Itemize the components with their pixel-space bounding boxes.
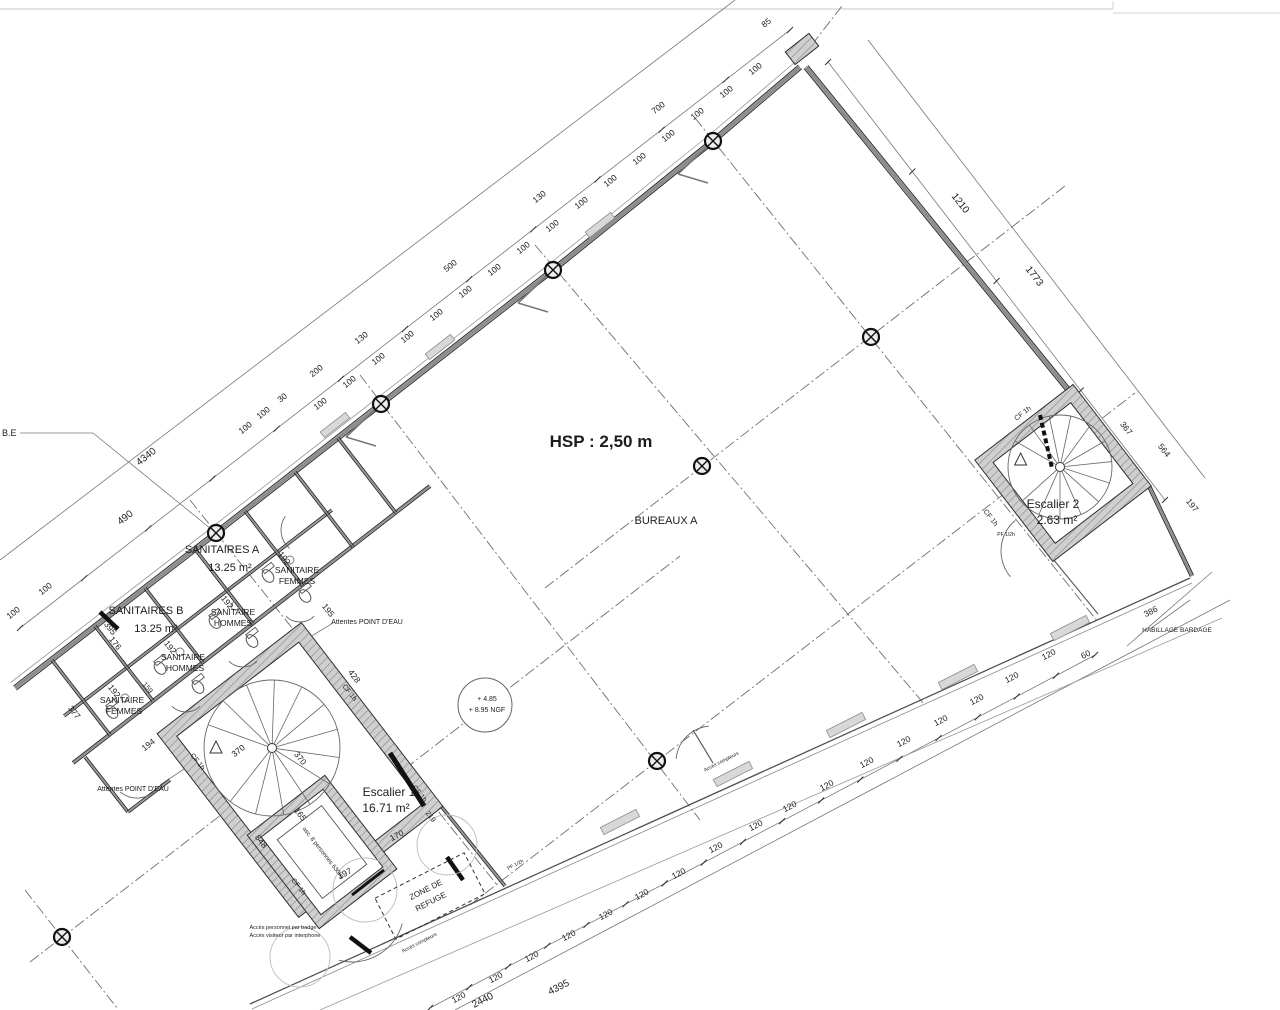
room-escalier-1: Escalier 1: [363, 785, 416, 799]
column-grid-marker: [373, 396, 389, 412]
dimension-label: 1210: [949, 191, 972, 216]
dimension-label: 120: [858, 755, 875, 770]
dimension-label: 428: [346, 667, 363, 685]
dimension-label: 120: [781, 799, 798, 814]
room-sanitaire-femmes-a1: SANITAIRE: [275, 565, 320, 575]
room-escalier-2-area: 2.63 m²: [1037, 513, 1078, 527]
column-grid-marker: [545, 262, 561, 278]
stair-elevator-cores: [100, 384, 1151, 953]
dimension-label: 120: [968, 692, 985, 707]
dimension-label: 100: [630, 150, 648, 167]
room-sanitaire-hommes-a2: HOMMES: [214, 618, 253, 628]
page-edge-lines: [0, 1, 1280, 13]
room-sanitaire-femmes-b2: FEMMES: [106, 706, 143, 716]
dimension-label: 100: [4, 604, 22, 621]
dimension-label: 564: [1156, 441, 1173, 459]
fragment-ble: B.E: [2, 428, 17, 438]
dimension-label: 194: [139, 736, 157, 753]
dimension-label: 120: [895, 734, 912, 749]
dimension-label: 120: [560, 928, 577, 943]
dimension-label: 120: [597, 907, 614, 922]
hsp-height-label: HSP : 2,50 m: [550, 432, 653, 451]
dimension-label: 85: [759, 16, 773, 30]
dimension-label: 4340: [134, 446, 159, 469]
dimension-label: 60: [1079, 648, 1092, 661]
dimension-label: 100: [254, 404, 272, 421]
dimension-label: 120: [747, 818, 764, 833]
dimension-label: 4395: [546, 978, 571, 998]
dimension-label: 377: [66, 703, 83, 721]
floor-plan-page: B.EHSP : 2,50 mBUREAUX ASANITAIRES A13.2…: [0, 0, 1280, 1010]
dimension-label: 100: [369, 350, 387, 367]
acces-badge-2: Accès visiteur par interphone: [250, 933, 321, 939]
acces-badge-1: Accès personnel par badge: [250, 925, 317, 931]
dimension-label: 1773: [1023, 264, 1046, 289]
dimension-label: 700: [649, 99, 667, 116]
dimension-label: 200: [307, 362, 325, 379]
room-sanitaire-femmes-a2: FEMMES: [279, 576, 316, 586]
dimension-label: 120: [1003, 670, 1020, 685]
room-sanitaire-hommes-b1: SANITAIRE: [161, 652, 206, 662]
dimension-label: 100: [746, 60, 764, 77]
floor-plan-canvas: B.EHSP : 2,50 mBUREAUX ASANITAIRES A13.2…: [0, 0, 1280, 1010]
dimension-label: 100: [36, 580, 54, 597]
dimension-label: 100: [427, 306, 445, 323]
column-grid-marker: [694, 458, 710, 474]
habillage-bardage: HABILLAGE BARDAGE: [1142, 627, 1212, 634]
dimension-label: 197: [1184, 496, 1201, 514]
dimension-label: 500: [441, 257, 459, 274]
dimension-label: 100: [456, 283, 474, 300]
fire-wall-5: CF 1h: [982, 508, 999, 527]
room-sanitaires-b-area: 13.25 m²: [134, 623, 178, 635]
structural-grid: [25, 6, 1135, 1008]
room-sanitaires-a: SANITAIRES A: [185, 544, 260, 556]
acces-compteurs-2: Accès compteurs: [401, 932, 438, 955]
room-sanitaires-b: SANITAIRES B: [109, 605, 184, 617]
fire-door-2: PF 1/2h: [997, 532, 1015, 538]
dimension-label: 100: [236, 419, 254, 436]
column-grid-marker: [208, 525, 224, 541]
dimension-label: 130: [352, 329, 370, 346]
dimension-label: 100: [688, 105, 706, 122]
column-grid-marker: [863, 329, 879, 345]
room-sanitaire-hommes-b2: HOMMES: [166, 663, 205, 673]
dimension-label: 30: [275, 391, 289, 405]
room-escalier-2: Escalier 2: [1027, 497, 1080, 511]
attentes-point-eau-2: Attentes POINT D'EAU: [97, 786, 169, 793]
room-escalier-1-area: 16.71 m²: [362, 801, 409, 815]
dimension-label: 120: [633, 887, 650, 902]
dimension-label: 386: [1142, 604, 1159, 619]
dimension-label: 120: [487, 970, 504, 985]
attentes-point-eau-1: Attentes POINT D'EAU: [331, 619, 403, 626]
dimension-label: 100: [398, 328, 416, 345]
dimension-label: 176: [107, 634, 124, 652]
dimension-label: 2440: [470, 991, 495, 1010]
dimension-label: 120: [1040, 647, 1057, 662]
ngf-level-1: + 4.85: [477, 696, 497, 703]
column-grid-marker: [705, 133, 721, 149]
dimension-label: 100: [340, 373, 358, 390]
column-grid-marker: [649, 753, 665, 769]
dimension-label: 490: [115, 508, 135, 527]
room-bureaux-a: BUREAUX A: [635, 515, 699, 527]
column-grid-marker: [54, 929, 70, 945]
dimension-label: 120: [670, 866, 687, 881]
dimension-label: 195: [320, 601, 337, 619]
room-sanitaires-a-area: 13.25 m²: [208, 562, 252, 574]
dimension-label: 130: [530, 188, 548, 205]
dimension-label: 120: [818, 778, 835, 793]
dimension-label: 100: [485, 261, 503, 278]
room-sanitaire-hommes-a1: SANITAIRE: [211, 607, 256, 617]
room-sanitaire-femmes-b1: SANITAIRE: [100, 695, 145, 705]
dimension-label: 120: [932, 713, 949, 728]
dimension-label: 100: [311, 395, 329, 412]
dimension-label: 120: [450, 990, 467, 1005]
dimension-label: 100: [717, 83, 735, 100]
ngf-level-2: + 8.95 NGF: [469, 707, 505, 714]
dimension-label: 367: [1118, 419, 1135, 437]
